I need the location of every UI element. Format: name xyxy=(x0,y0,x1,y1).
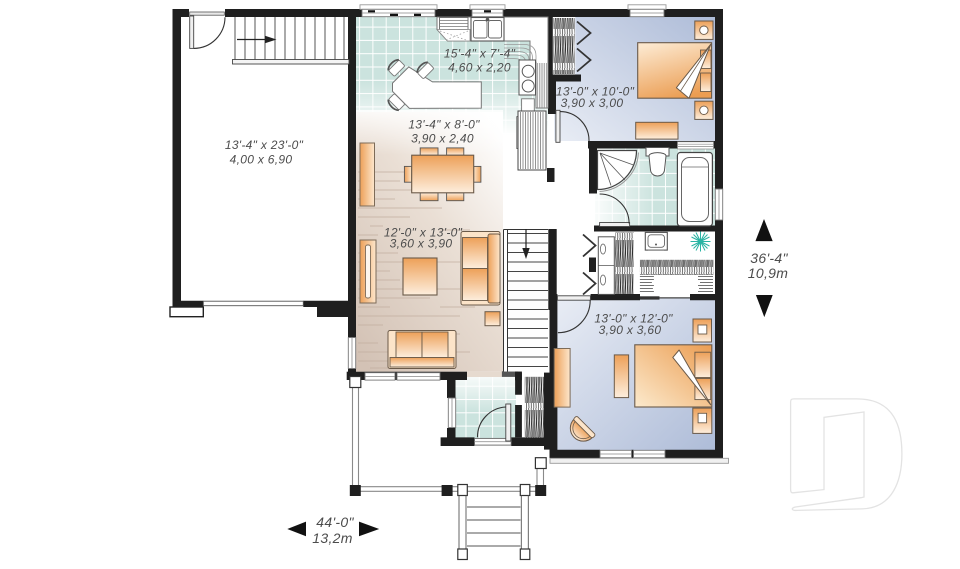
svg-text:13'-4" x 8'-0": 13'-4" x 8'-0" xyxy=(408,118,480,132)
svg-text:3,90 x 3,60: 3,90 x 3,60 xyxy=(599,323,662,337)
svg-text:3,90 x 2,40: 3,90 x 2,40 xyxy=(411,132,474,146)
svg-text:10,9m: 10,9m xyxy=(748,265,788,281)
svg-text:13,2m: 13,2m xyxy=(312,530,352,546)
svg-text:3,60 x 3,90: 3,60 x 3,90 xyxy=(390,237,453,251)
svg-text:13'-4" x 23'-0": 13'-4" x 23'-0" xyxy=(225,138,304,152)
svg-text:3,90 x 3,00: 3,90 x 3,00 xyxy=(561,96,624,110)
svg-text:15'-4" x 7'-4": 15'-4" x 7'-4" xyxy=(444,47,516,61)
svg-text:4,60 x 2,20: 4,60 x 2,20 xyxy=(448,61,511,75)
svg-text:4,00 x 6,90: 4,00 x 6,90 xyxy=(230,153,293,167)
svg-text:36'-4": 36'-4" xyxy=(750,250,788,266)
svg-text:44'-0": 44'-0" xyxy=(316,514,354,530)
